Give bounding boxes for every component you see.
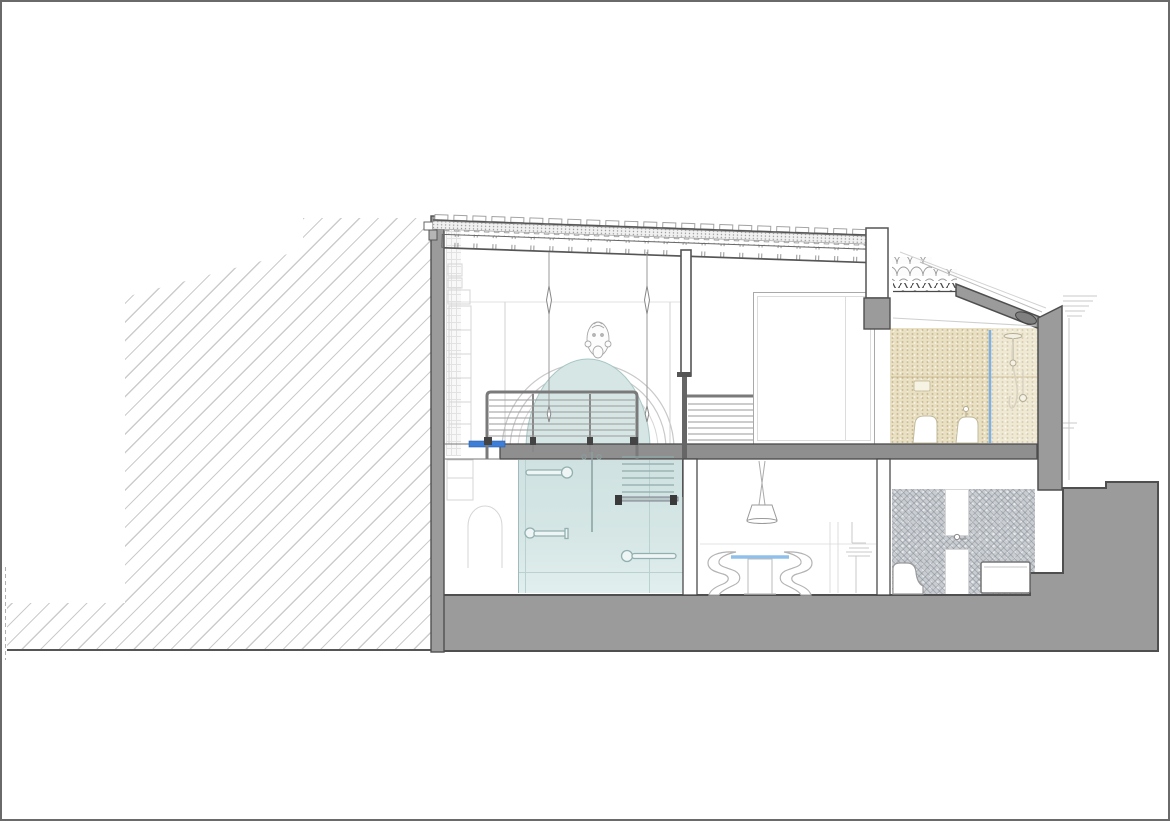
duct [681,250,691,376]
basin-faucet [954,534,959,539]
newel-cap [677,372,691,377]
keystone-mask-ornament [585,322,611,358]
main-roof [432,214,873,263]
arched-opening [502,302,674,449]
shower-column [1004,334,1027,409]
pilaster-capital [846,522,872,593]
lower-bathroom [893,534,1030,594]
dining-set [700,461,876,595]
shelving-outline [447,264,502,568]
glass-door-hardware [525,452,676,562]
flush-plate [914,381,930,391]
chimney [866,228,888,298]
parapet-poche [864,298,890,329]
gutter [429,230,437,240]
wall-living-dining [683,459,697,595]
section-linework [0,0,1170,821]
wall-dining-bathroom [877,459,890,595]
stair [615,457,678,505]
wall-hung-wc [913,416,937,443]
wc [893,563,923,594]
left-wall-poche [431,216,444,652]
facade-outline [1063,296,1097,480]
cable-railing-right [687,396,753,440]
upper-bathroom [891,330,1037,443]
bidet [956,417,978,443]
section-drawing [0,0,1170,821]
right-wall-poche [1038,306,1062,490]
cone-pendant-lamp [747,461,777,524]
mezzanine-slab [500,444,1037,459]
